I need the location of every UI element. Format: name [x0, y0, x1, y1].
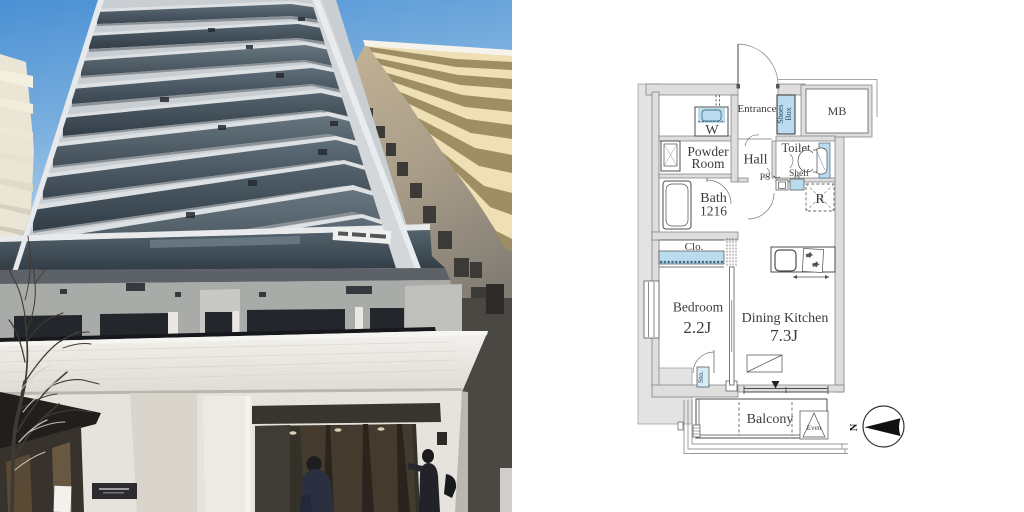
svg-text:Room: Room — [691, 156, 725, 171]
svg-text:Hall: Hall — [743, 153, 767, 168]
svg-text:N: N — [849, 423, 860, 431]
svg-text:Shelf: Shelf — [789, 168, 810, 179]
svg-text:PS: PS — [760, 173, 771, 183]
svg-text:Entrance: Entrance — [737, 103, 776, 115]
svg-text:W: W — [705, 123, 719, 138]
svg-text:R: R — [815, 192, 825, 207]
svg-text:2.2J: 2.2J — [683, 318, 711, 337]
svg-text:7.3J: 7.3J — [770, 326, 798, 345]
svg-text:Balcony: Balcony — [747, 412, 794, 427]
svg-text:Dining Kitchen: Dining Kitchen — [742, 311, 829, 326]
svg-text:Box: Box — [784, 107, 793, 120]
svg-text:Even: Even — [807, 424, 822, 432]
svg-text:Sto.: Sto. — [696, 371, 705, 383]
svg-text:Bedroom: Bedroom — [673, 300, 724, 315]
svg-text:1216: 1216 — [700, 204, 727, 219]
svg-text:MB: MB — [828, 104, 847, 118]
